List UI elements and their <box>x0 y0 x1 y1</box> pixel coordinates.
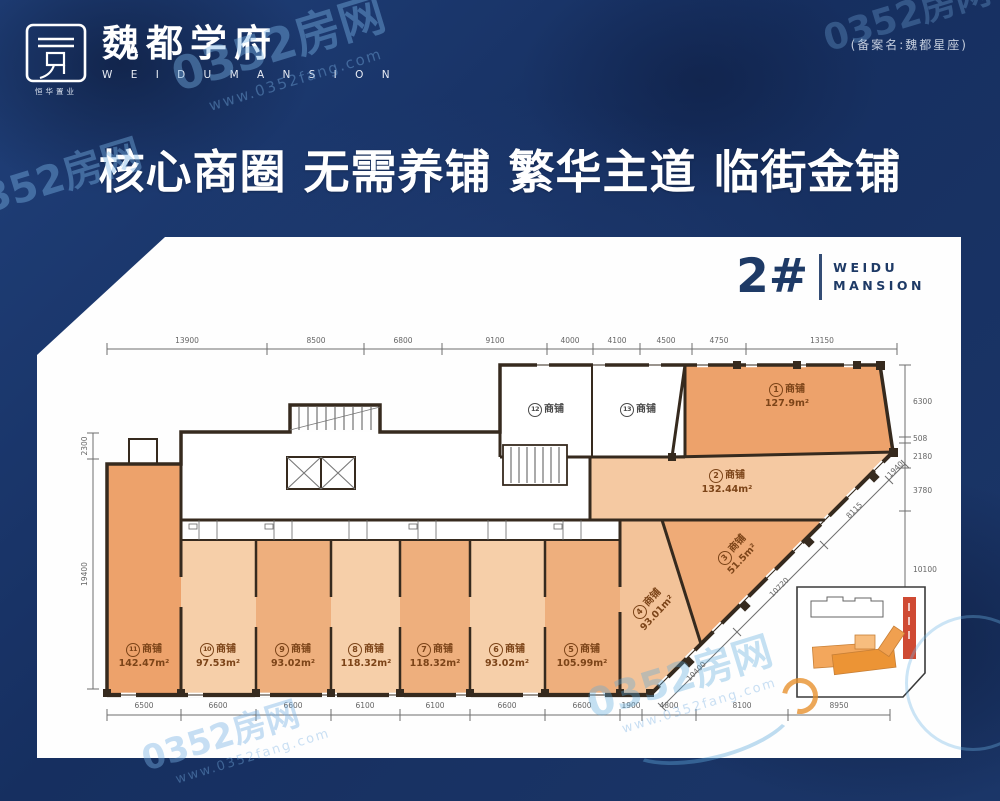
poster-page: 0352房网 www.0352fang.com 0352房网 0352房网 ww… <box>0 0 1000 801</box>
filing-name: (备案名:魏都星座) <box>851 36 968 53</box>
svg-text:6300: 6300 <box>913 397 932 406</box>
svg-text:10720: 10720 <box>768 575 791 598</box>
svg-text:8950: 8950 <box>829 701 848 710</box>
svg-text:6800: 6800 <box>393 336 412 345</box>
svg-text:6600: 6600 <box>208 701 227 710</box>
shop-number: 1 <box>769 383 783 397</box>
dim-left <box>87 433 99 689</box>
floorplan-card: 2# WEIDU MANSION <box>37 237 961 758</box>
svg-text:6500: 6500 <box>134 701 153 710</box>
svg-text:13150: 13150 <box>810 336 834 345</box>
shop-label-7: 7商铺 118.32m² <box>403 643 467 669</box>
svg-text:6100: 6100 <box>425 701 444 710</box>
svg-text:4100: 4100 <box>607 336 626 345</box>
building-number: 2# <box>736 253 808 300</box>
brand-name-cn: 魏都学府 <box>102 22 397 65</box>
building-label: 2# WEIDU MANSION <box>736 253 925 300</box>
svg-text:8100: 8100 <box>732 701 751 710</box>
svg-text:2180: 2180 <box>913 452 932 461</box>
stair-core <box>290 407 380 430</box>
shop-label-9: 9商铺 93.02m² <box>261 643 325 669</box>
site-inset-map <box>797 587 925 697</box>
shop-label-10: 10商铺 97.53m² <box>186 643 250 669</box>
svg-text:508: 508 <box>913 434 928 443</box>
svg-text:6600: 6600 <box>497 701 516 710</box>
svg-text:8115: 8115 <box>844 500 864 520</box>
brand-logo-subtext: 恒华置业 <box>24 86 88 97</box>
svg-text:6600: 6600 <box>283 701 302 710</box>
divider <box>819 254 822 300</box>
shop-area: 127.9m² <box>755 398 819 409</box>
shop-name: 商铺 <box>785 384 805 396</box>
shop-label-8: 8商铺 118.32m² <box>334 643 398 669</box>
dim-bottom <box>107 709 890 721</box>
svg-text:2300: 2300 <box>80 436 89 455</box>
shop-label-6: 6商铺 93.02m² <box>475 643 539 669</box>
svg-text:6600: 6600 <box>572 701 591 710</box>
svg-text:1900: 1900 <box>621 701 640 710</box>
shop-label-2: 2商铺 132.44m² <box>695 469 759 495</box>
svg-text:8500: 8500 <box>306 336 325 345</box>
shop-label-12: 12商铺 <box>514 403 578 417</box>
elevator-core <box>287 457 355 489</box>
svg-text:4000: 4000 <box>560 336 579 345</box>
svg-text:4750: 4750 <box>709 336 728 345</box>
svg-text:1940: 1940 <box>885 459 905 479</box>
svg-text:4500: 4500 <box>656 336 675 345</box>
brand-logo: 恒华置业 魏都学府 W E I D U M A N S I O N <box>24 22 397 100</box>
shop-label-5: 5商铺 105.99m² <box>550 643 614 669</box>
svg-text:6100: 6100 <box>355 701 374 710</box>
shop-label-13: 13商铺 <box>606 403 670 417</box>
svg-text:19400: 19400 <box>80 562 89 586</box>
svg-text:4800: 4800 <box>659 701 678 710</box>
stair-core-2 <box>503 445 567 485</box>
building-label-en: WEIDU MANSION <box>833 259 925 294</box>
svg-text:13900: 13900 <box>175 336 199 345</box>
brand-name-en: W E I D U M A N S I O N <box>102 69 397 81</box>
brand-logo-icon <box>24 22 88 86</box>
svg-text:10100: 10100 <box>913 565 937 574</box>
shop-label-11: 11商铺 142.47m² <box>112 643 176 669</box>
shop-label-1: 1商铺 127.9m² <box>755 383 819 409</box>
svg-text:3780: 3780 <box>913 486 932 495</box>
svg-text:9100: 9100 <box>485 336 504 345</box>
floorplan-drawing: 13900 8500 6800 9100 4000 4100 4500 4750… <box>37 237 961 758</box>
headline: 核心商圈 无需养铺 繁华主道 临街金铺 <box>0 136 1000 202</box>
